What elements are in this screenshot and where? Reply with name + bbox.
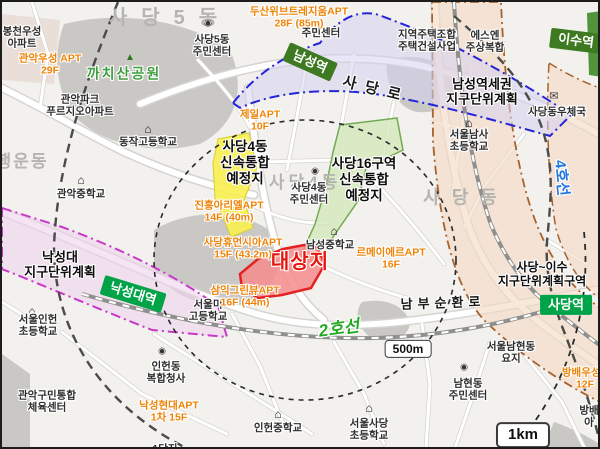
sadang-station-badge: 사당역 [540,295,592,315]
line4-label: 4호선 [550,159,571,197]
sadang-ro-label: 사당로 [341,73,412,107]
post-icon: ✉ [549,91,558,104]
map-label-seoul-sadang-elementary: 서울사당초등학교 [350,418,389,443]
school-icon: ⌂ [274,407,281,421]
apt-label-jinheung-ariel-apt: 진흥아리엘APT14F (40m) [194,200,263,225]
map-label-seoul-inheon-elementary: 서울인헌초등학교 [19,314,58,339]
apt-label-jeil-apt: 제일APT10F [240,109,280,134]
district-label-sadang-dong: 사당동 [423,187,509,208]
dot-icon: ◉ [460,362,468,373]
sadang16-expedited-label: 사당16구역신속통합예정지 [332,156,397,204]
tree-icon: ▲ [125,52,135,64]
apt-label-lemeilleur-apt: 르메이에르APT16F [356,247,425,272]
isu-station-badge: 이수역 [549,28,600,54]
map-label-inheon-complex-office: 인헌동복합청사 [147,361,186,386]
nakseongdae-station-badge: 낙성대역 [100,275,167,313]
dot-icon: ◉ [158,346,166,357]
school-icon: ⌂ [365,401,372,415]
map-label-sadang-post-office: 사당동우체국 [528,106,586,118]
map-canvas: 사당5동행운동사당4동사당동까치산공원⌂⌂⌂⌂⌂⌂⌂◉◉◉◉✉▲봉천우성아파트관… [0,0,600,449]
map-label-bongcheon-wuseong-apt: 봉천우성아파트 [3,26,42,51]
map-label-gwanak-sports-center: 관악구민통합체육센터 [18,390,76,415]
apt-label-nakseong-hyundai-apt: 낙성현대APT1차 15F [139,400,199,425]
apt-label-gwanak-wuseong-apt: 관악우성 APT29F [19,53,82,78]
school-icon: ⌂ [330,224,337,238]
scale-500m: 500m [385,340,432,358]
map-label-sadang4-community-center: 사당4동주민센터 [290,182,329,207]
scale-1km: 1km [496,422,550,448]
map-label-dongjak-high-school: 동작고등학교 [119,136,177,148]
apt-label-bangbae-wuseong-apt: 방배우성A12F [562,367,600,392]
sadang4-expedited-label: 사당4동신속통합예정지 [220,139,270,187]
district-label-sadang5-dong: 사당5동 [109,7,231,31]
map-label-seoul-namhyeon-site: 서울남현동요지 [487,341,535,366]
map-label-sn-mixed-use: 에스엔주상복합 [466,30,505,55]
namseong-station-badge: 남성역 [282,42,338,82]
map-label-gwanak-park-prugio: 관악파크푸르지오아파트 [46,94,114,119]
school-icon: ⌂ [77,173,84,187]
apt-label-samik-greenview-apt: 삼익그린뷰APT16F (44m) [210,285,279,310]
map-label-inheon-middle-school: 인헌중학교 [254,422,302,434]
district-label-haengun-dong: 행운동 [0,152,48,172]
map-label-housing-association-project: 지역주택조합주택건설사업 [398,29,456,54]
map-label-seoul-namsa-elementary: 서울남사초등학교 [450,129,489,154]
kkachisan-park-label: 까치산공원 [87,66,161,83]
map-label-sadang5-community-center: 사당5동주민센터 [193,34,232,59]
dot-icon: ◉ [204,18,212,29]
map-labels-layer: 사당5동행운동사당4동사당동까치산공원⌂⌂⌂⌂⌂⌂⌂◉◉◉◉✉▲봉천우성아파트관… [2,2,598,447]
nakseongdae-district-plan-label: 낙성대지구단위계획 [24,250,96,281]
line2-label: 2호선 [317,316,360,342]
dot-icon: ◉ [311,166,319,177]
apt-label-doosan-weve-apt: 두산위브트레지움APT28F (85m) [250,6,348,31]
map-label-bangbae-partial: 방배아 [579,405,598,430]
target-site-label: 대상지 [271,251,329,275]
map-label-danji-partial: 1단지 [152,443,177,449]
namseong-station-district-plan-label: 남성역세권지구단위계획 [446,77,518,108]
map-label-namseong-middle-school: 남성중학교 [306,239,354,251]
map-label-gwanak-middle-school: 관악중학교 [57,188,105,200]
sadang-isu-district-plan-label: 사당~이수지구단위계획구역 [498,260,586,288]
nambu-beltway-label: 남부순환로 [400,294,485,312]
school-icon: ⌂ [144,122,151,136]
map-label-namhyeon-community-center: 남현동주민센터 [449,378,488,403]
